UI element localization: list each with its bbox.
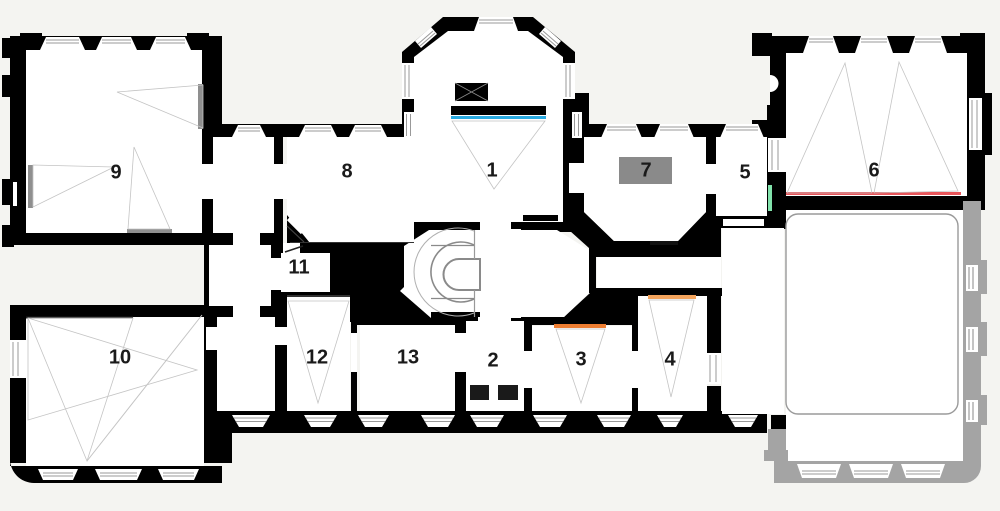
svg-text:5: 5 [739,161,750,183]
svg-text:6: 6 [868,159,879,181]
svg-text:13: 13 [397,346,419,368]
svg-text:7: 7 [640,159,651,181]
svg-text:8: 8 [341,160,352,182]
svg-text:4: 4 [664,348,676,370]
svg-text:1: 1 [486,159,497,181]
svg-text:12: 12 [306,346,328,368]
svg-text:9: 9 [110,161,121,183]
svg-text:2: 2 [487,349,498,371]
svg-text:10: 10 [109,346,131,368]
svg-text:11: 11 [288,256,309,278]
svg-text:3: 3 [575,348,586,370]
